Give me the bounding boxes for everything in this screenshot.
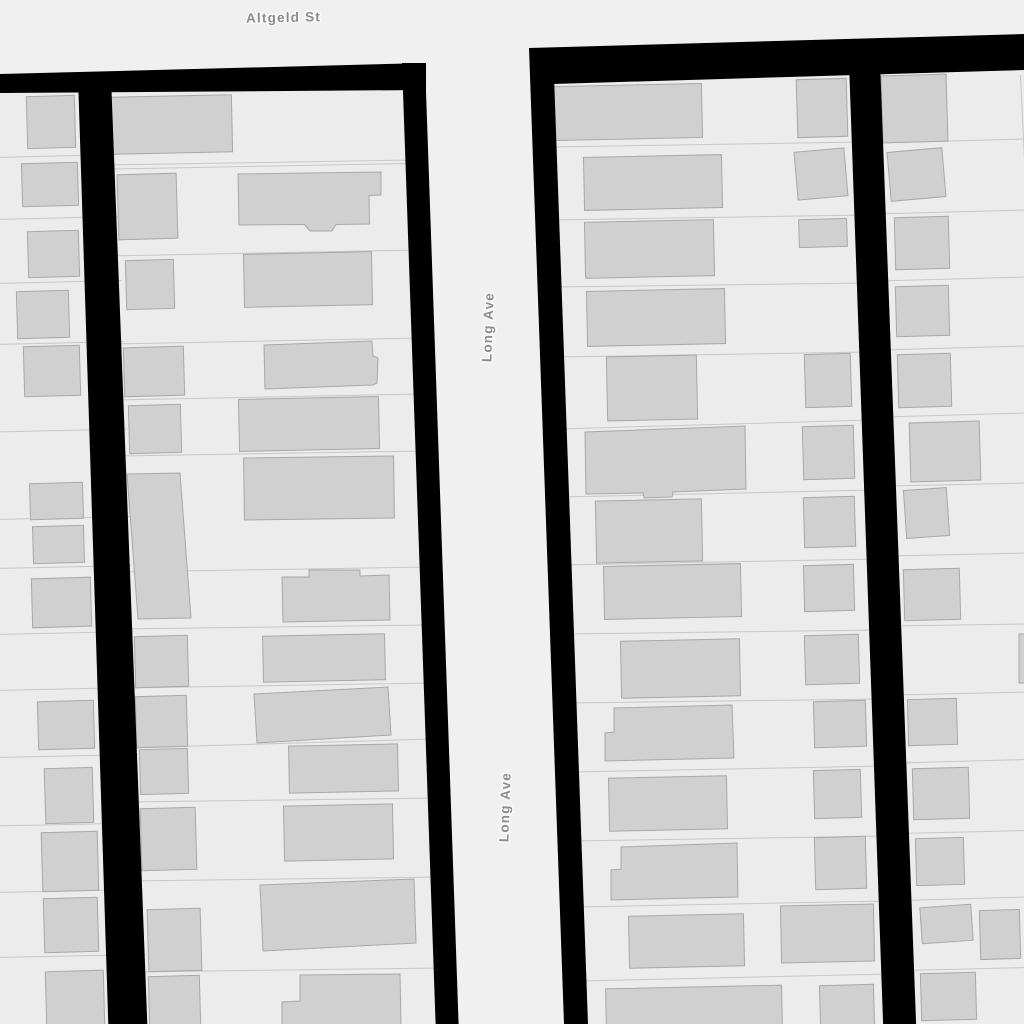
svg-text:Altgeld St: Altgeld St <box>246 9 321 26</box>
svg-text:Long Ave: Long Ave <box>479 292 496 363</box>
svg-text:Long Ave: Long Ave <box>496 772 513 843</box>
